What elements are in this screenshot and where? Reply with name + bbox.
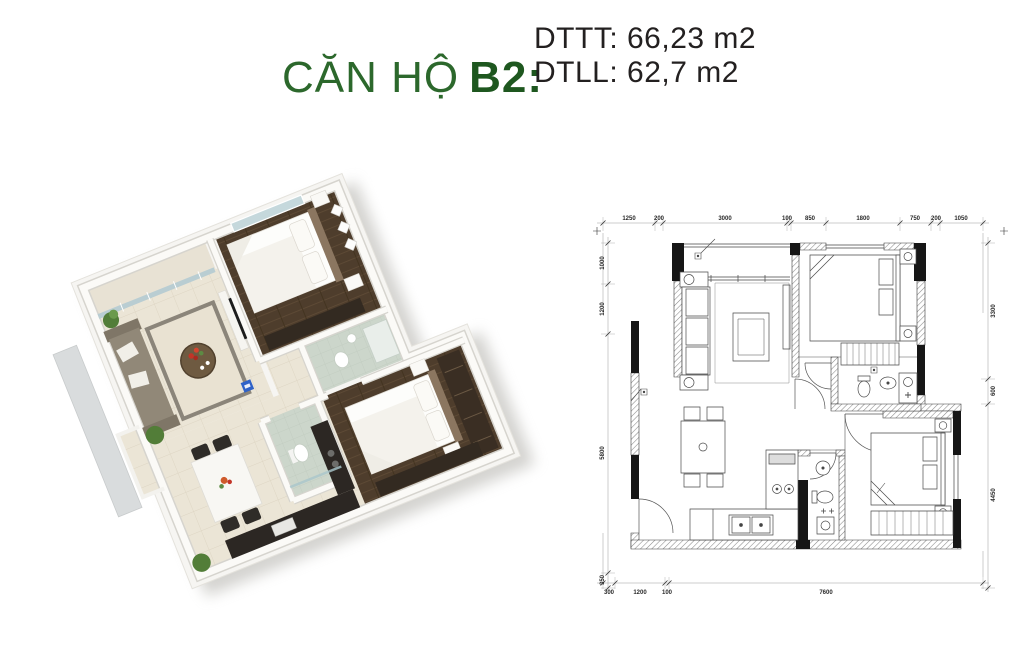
dim-label: 1800	[856, 216, 870, 222]
dim-label: 300	[604, 590, 615, 596]
bathroom2-fixtures	[812, 461, 834, 534]
dim-label: 1000	[600, 256, 606, 270]
rotated-apartment-group	[31, 147, 535, 616]
floor-plan-2d-drawing: 1250 200 3000 100 850 1800 750 200 1050 …	[583, 193, 1013, 605]
area-dtt-line: DTTT: 66,23 m2	[534, 22, 756, 56]
dim-label: 100	[782, 216, 793, 222]
doors	[639, 363, 883, 533]
bathroom1-fixtures	[858, 373, 917, 403]
area-dtll-line: DTLL: 62,7 m2	[534, 56, 756, 90]
apartment-title: CĂN HỘB2:	[282, 53, 543, 103]
bedroom2-furniture	[871, 419, 953, 535]
dim-label: 100	[662, 590, 673, 596]
dim-label: 750	[910, 216, 921, 222]
title-text: CĂN HỘ	[282, 53, 459, 102]
bedroom1-furniture	[810, 249, 916, 365]
dining-furniture	[681, 407, 725, 487]
dim-label: 200	[931, 216, 942, 222]
floor-plan-3d-render	[6, 98, 572, 644]
dim-label: 350	[600, 574, 606, 585]
dim-label: 1050	[954, 216, 968, 222]
area-info: DTTT: 66,23 m2 DTLL: 62,7 m2	[534, 22, 756, 90]
dim-label: 1200	[600, 302, 606, 316]
living-furniture	[680, 272, 790, 390]
dim-label: 4450	[991, 488, 997, 502]
dim-label: 7600	[819, 590, 833, 596]
unit-code: B2	[469, 53, 527, 102]
dim-label: 5800	[600, 446, 606, 460]
dim-label: 850	[805, 216, 816, 222]
brochure-page: CĂN HỘB2: DTTT: 66,23 m2 DTLL: 62,7 m2	[0, 0, 1024, 650]
dim-label: 1200	[633, 590, 647, 596]
dim-label: 200	[654, 216, 665, 222]
dim-label: 3300	[991, 304, 997, 318]
dim-label: 600	[991, 385, 997, 396]
dim-label: 3000	[718, 216, 732, 222]
dim-label: 1250	[622, 216, 636, 222]
